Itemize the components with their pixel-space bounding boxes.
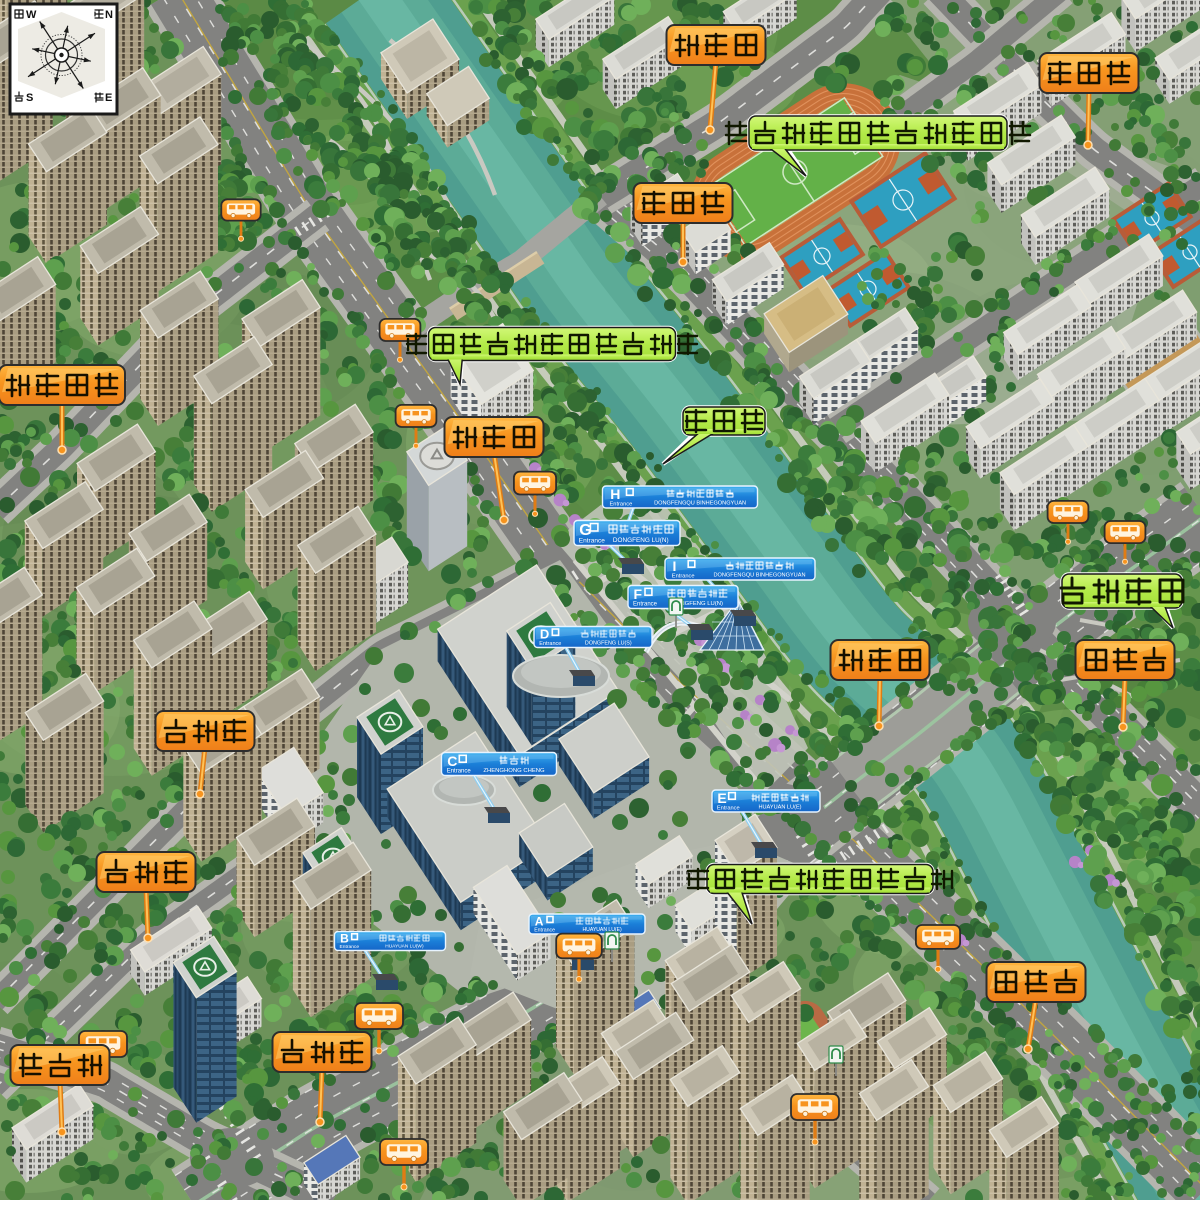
svg-text:ZHENGHONG CHENG: ZHENGHONG CHENG bbox=[483, 768, 545, 774]
svg-text:Entrance: Entrance bbox=[539, 641, 561, 647]
svg-text:Entrance: Entrance bbox=[633, 602, 658, 608]
svg-text:E: E bbox=[105, 92, 112, 104]
svg-text:N: N bbox=[105, 9, 113, 21]
svg-text:Entrance: Entrance bbox=[717, 805, 740, 811]
svg-text:B: B bbox=[340, 932, 349, 946]
svg-text:S: S bbox=[26, 92, 33, 104]
svg-text:DONGFENG LU(S): DONGFENG LU(S) bbox=[585, 640, 632, 646]
svg-text:F: F bbox=[634, 586, 643, 602]
svg-text:W: W bbox=[26, 9, 37, 21]
svg-text:HUAYUAN LU(E): HUAYUAN LU(E) bbox=[758, 805, 801, 811]
svg-text:E: E bbox=[717, 790, 726, 806]
svg-text:HUAYUAN LU(W): HUAYUAN LU(W) bbox=[385, 944, 424, 950]
svg-text:Entrance: Entrance bbox=[610, 501, 633, 507]
svg-text:Entrance: Entrance bbox=[447, 769, 472, 775]
svg-text:Entrance: Entrance bbox=[672, 573, 695, 579]
svg-text:Entrance: Entrance bbox=[579, 538, 605, 545]
svg-text:A: A bbox=[535, 915, 544, 929]
svg-text:Entrance: Entrance bbox=[340, 944, 360, 950]
svg-text:D: D bbox=[540, 627, 549, 642]
svg-text:C: C bbox=[447, 753, 457, 769]
svg-text:DONGFENGQU BINHEGONGYUAN: DONGFENGQU BINHEGONGYUAN bbox=[654, 501, 746, 507]
svg-text:Entrance: Entrance bbox=[534, 928, 555, 934]
svg-text:I: I bbox=[673, 558, 677, 574]
svg-text:DONGFENG LU(N): DONGFENG LU(N) bbox=[613, 537, 669, 544]
svg-text:H: H bbox=[610, 486, 620, 502]
svg-text:DONGFENGQU BINHEGONGYUAN: DONGFENGQU BINHEGONGYUAN bbox=[714, 573, 806, 579]
